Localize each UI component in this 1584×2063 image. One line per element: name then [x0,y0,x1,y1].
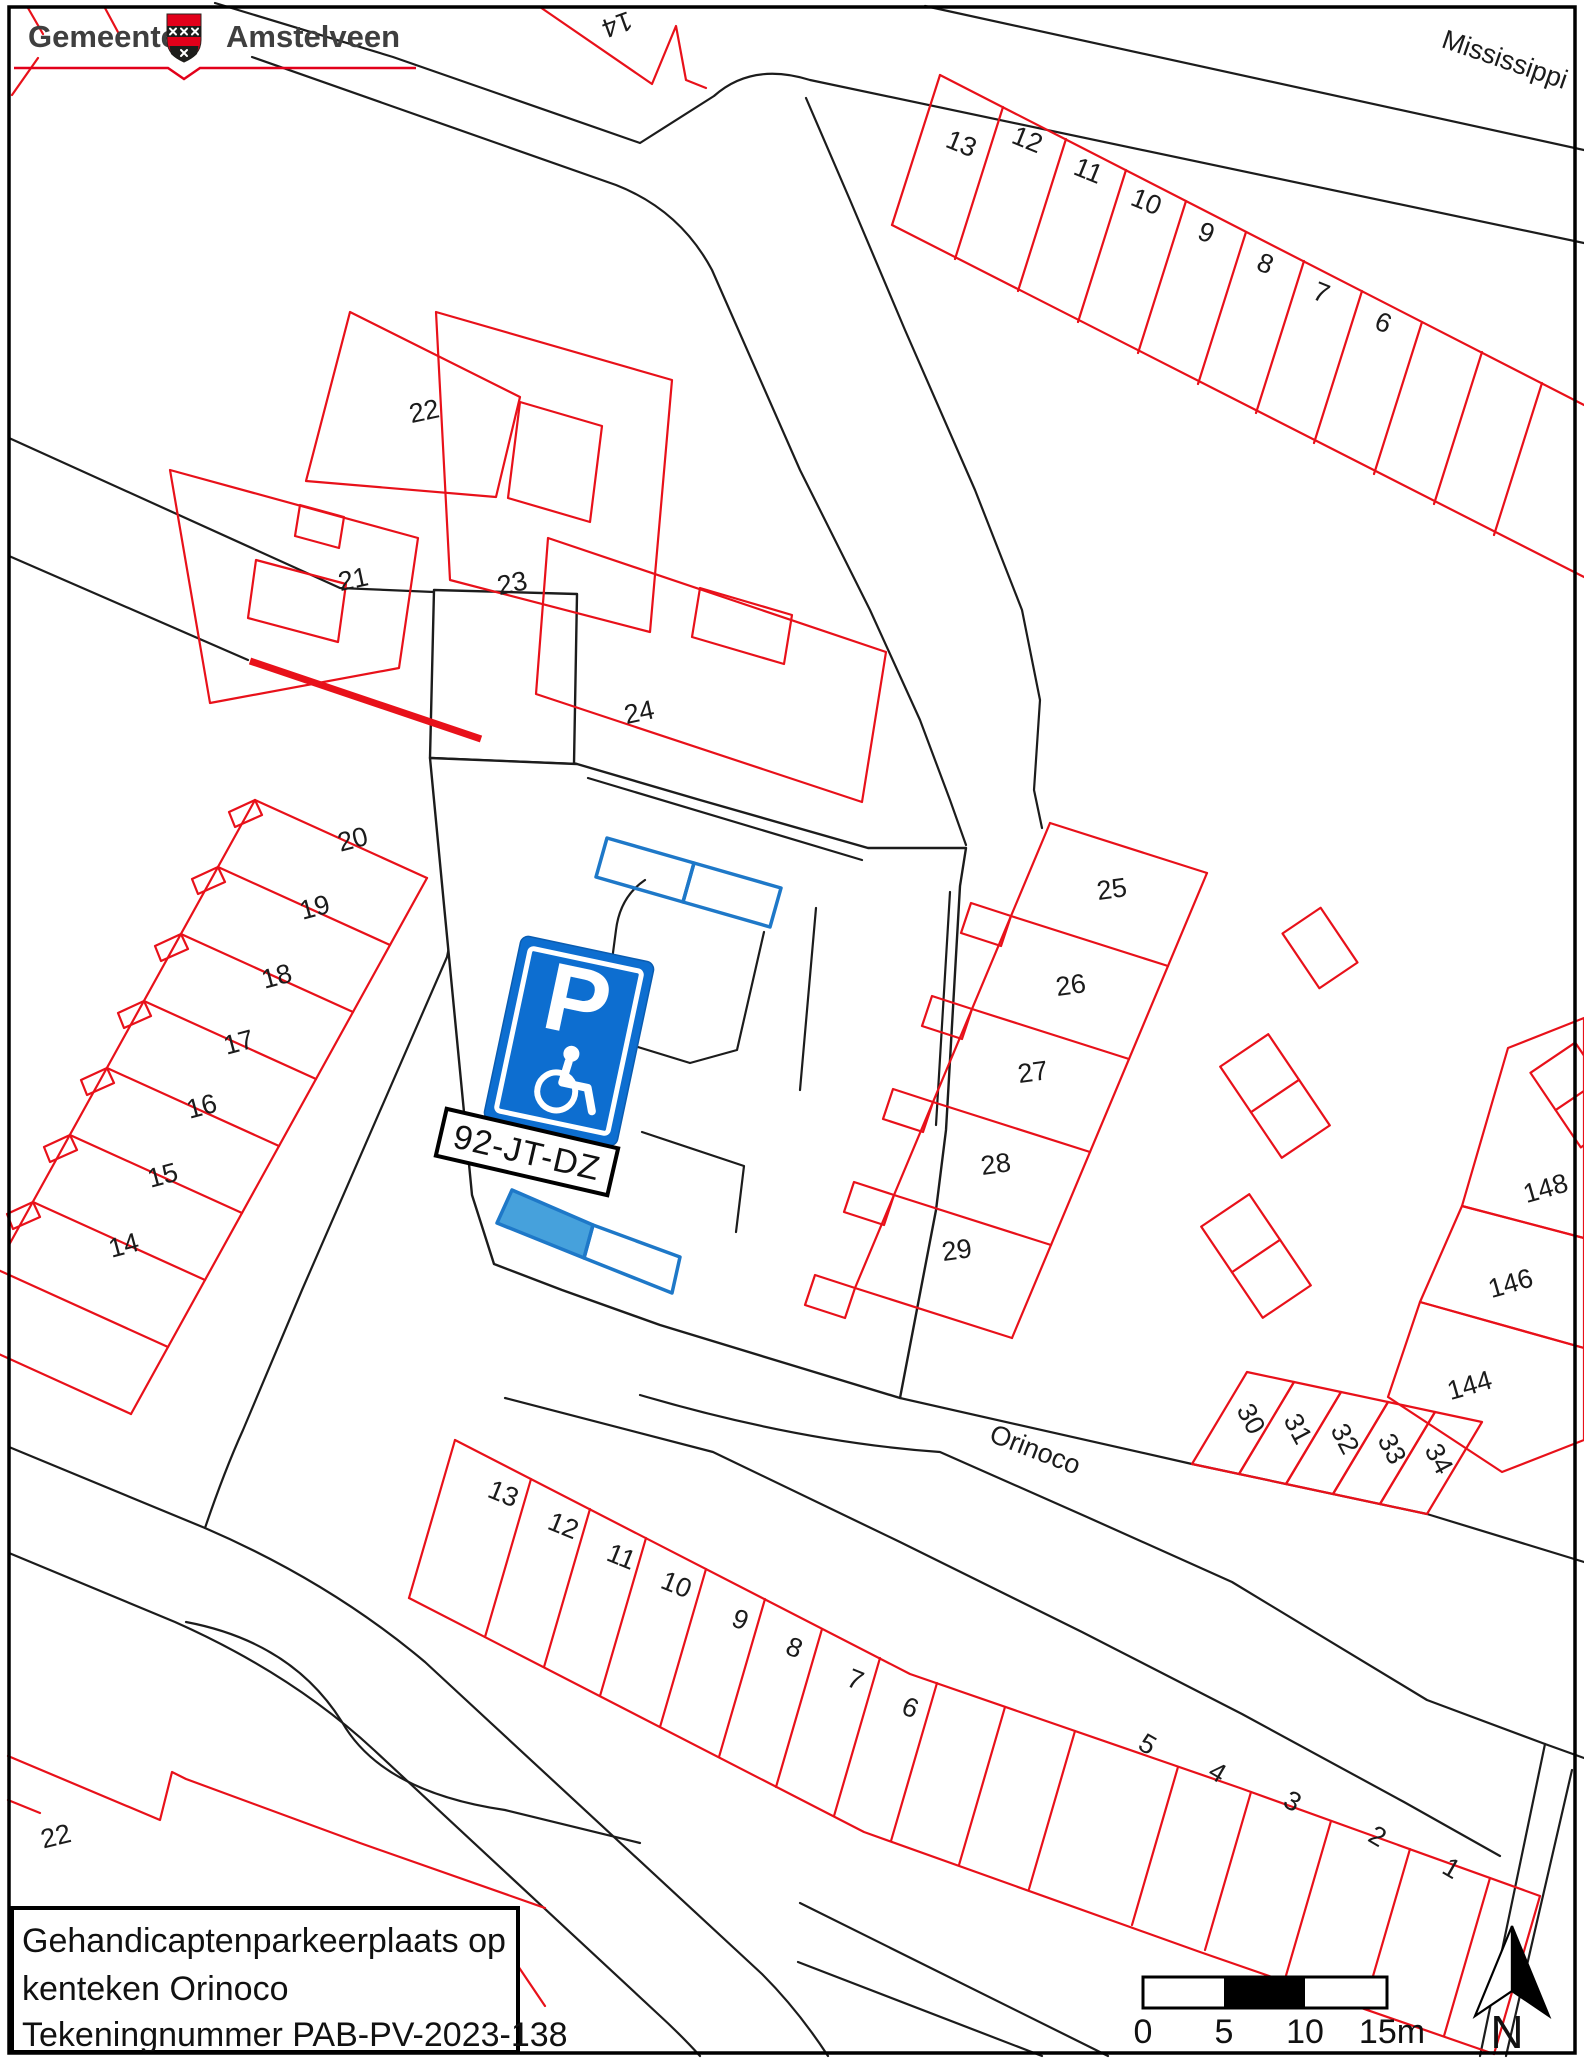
map-page: 1413121110987622212324201918171615142526… [0,0,1584,2063]
parcel-number: 33 [1372,1428,1413,1469]
parcel-number: 13 [484,1474,523,1513]
parcel-number: 13 [942,124,981,163]
title-line-3: Tekeningnummer PAB-PV-2023-138 [22,2016,568,2054]
row-bottom-dividers [485,1479,1490,2036]
parcel-number: 148 [1520,1168,1572,1209]
parcel-number: 11 [603,1537,640,1575]
road-southwest-inner [186,1622,640,1843]
cadastral-map: 1413121110987622212324201918171615142526… [0,0,1584,2063]
parcel-number: 30 [1231,1398,1272,1439]
garage-2 [1220,1034,1330,1158]
road-northwest-upper [9,438,434,592]
parcel-number: 24 [621,694,657,730]
title-block: Gehandicaptenparkeerplaats op kenteken O… [12,1908,568,2054]
north-arrow-icon: N [1475,1926,1549,2058]
parcel-number: 18 [258,958,295,995]
parcel-number: 34 [1419,1438,1460,1479]
parcel-21-building [248,505,346,642]
parcel-number: 7 [1309,276,1334,309]
parcel-number: 12 [544,1506,583,1545]
road-curve-west [252,57,966,845]
parcel-number: 32 [1325,1418,1366,1459]
scale-bar: 0 5 10 15m [1134,1977,1426,2051]
row-topright-top [940,75,1584,405]
parcel-number: 8 [1253,247,1278,280]
parcel-24 [536,538,886,802]
parcel-number: 6 [898,1691,923,1724]
road-orinoco-lane [505,1398,1500,1856]
parcel-number: 17 [220,1024,257,1061]
row-bottom-ends [409,1440,1540,2054]
parcel-number: 20 [334,821,371,858]
municipality-logo: Gemeente Amstelveen [14,14,416,79]
parcel-number: 8 [782,1631,807,1664]
parcel-number: 27 [1016,1055,1050,1089]
scale-tick-15m: 15m [1359,2013,1425,2051]
street-label-mississippi: Mississippi [1438,24,1571,95]
parcel-number: 19 [296,889,333,926]
parcel-number: 28 [979,1147,1013,1181]
parcel-number: 29 [940,1233,974,1267]
central-garage-outline [430,590,577,764]
north-label: N [1490,2006,1523,2058]
parcel-number: 2 [1363,1819,1391,1852]
scale-bar-black-segment [1224,1977,1305,2008]
parcel-number: 3 [1278,1784,1306,1817]
title-line-1: Gehandicaptenparkeerplaats op [22,1922,506,1960]
road-bottom-diag-2 [798,1962,1042,2056]
parcel-number: 14 [598,5,636,43]
row-topright-left [892,75,940,225]
parcel-number: 5 [1133,1727,1161,1760]
row-topright-bottom [892,225,1584,577]
logo-text-amstelveen: Amstelveen [226,19,400,54]
parcel-number: 22 [406,393,442,429]
parcel-number: 7 [843,1663,868,1696]
par cel-21 [170,470,418,703]
parcel-number: 31 [1278,1408,1319,1449]
garage-1 [1282,908,1357,988]
logo-text-gemeente: Gemeente [28,19,178,54]
parcel-number: 23 [494,565,530,601]
parcel-number: 22 [38,1818,74,1854]
road-curve-east [806,98,1042,828]
parcel-number: 16 [183,1088,220,1125]
parcel-number: 6 [1371,306,1396,339]
road-northwest-lower [9,556,248,660]
parcel-number: 21 [335,561,371,597]
parcel-number: 26 [1054,968,1088,1002]
parcel-23-building [508,402,602,522]
parcel-23 [436,312,672,632]
logo-underline [14,68,416,79]
parcel-number: 15 [144,1157,181,1194]
parcel-number: 146 [1485,1263,1537,1304]
parcel-number: 25 [1095,872,1129,906]
garage-3 [1201,1194,1311,1318]
title-line-2: kenteken Orinoco [22,1970,289,2008]
road-mississippi-south [215,3,1584,243]
parcel-number: 9 [1194,216,1219,249]
parcel-number: 14 [105,1227,142,1264]
parcel-number: 9 [728,1603,753,1636]
parcel-148 [1462,1018,1584,1238]
scale-tick-0: 0 [1134,2013,1153,2051]
amstelveen-crest-icon [167,14,201,62]
parcel-number: 10 [657,1565,696,1604]
scale-tick-10: 10 [1286,2013,1324,2051]
row-topright-dividers [955,107,1542,535]
parcel-number: 144 [1444,1365,1496,1406]
terrace-right-ne [1012,873,1207,1338]
scale-tick-5: 5 [1215,2013,1234,2051]
parcel-24-building [692,588,792,664]
parcel-bottomleft-22 [8,1756,545,1908]
